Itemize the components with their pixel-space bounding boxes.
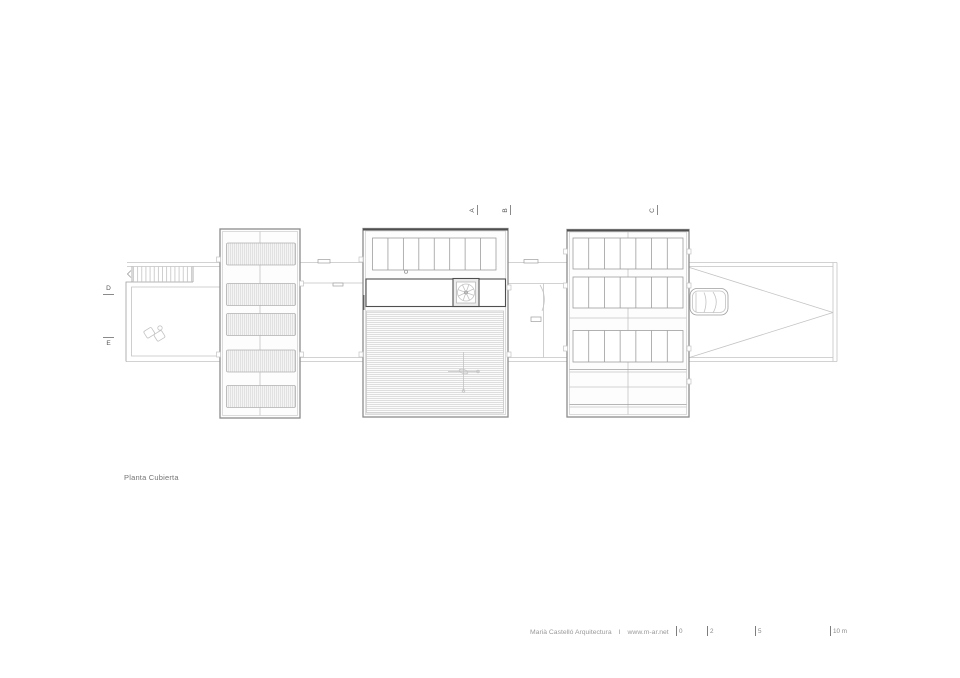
beam-stub <box>217 352 221 357</box>
solar-panel <box>227 386 296 408</box>
scale-tick-0: 0 <box>676 626 683 636</box>
section-marker-c: C <box>648 204 658 216</box>
scale-tick-5: 5 <box>755 626 762 636</box>
section-marker-e: E <box>102 337 115 347</box>
beam-stub <box>687 249 691 254</box>
beam-stub <box>359 352 363 357</box>
beam-stub <box>564 346 568 351</box>
credit-separator: I <box>619 629 621 636</box>
scale-tick-mark-icon <box>830 626 831 636</box>
roof-deck <box>367 311 504 413</box>
beam-stub <box>687 346 691 351</box>
beam-stub <box>359 257 363 262</box>
section-marker-d: D <box>102 285 115 295</box>
section-label-d: D <box>106 285 111 292</box>
drawing-title: Planta Cubierta <box>124 473 179 482</box>
section-marker-b: B <box>501 204 511 216</box>
website-url: www.m-ar.net <box>628 629 669 636</box>
stair-treads <box>134 267 192 283</box>
roof-panel-rows <box>573 238 683 362</box>
scale-tick-label: 0 <box>679 628 683 635</box>
scale-tick-mark-icon <box>676 626 677 636</box>
scale-tick-label: 10 m <box>833 628 847 635</box>
drawing-sheet: A B C D E Planta Cubierta Marià Castelló… <box>0 0 960 678</box>
scale-tick-10: 10 m <box>830 626 847 636</box>
scale-tick-2: 2 <box>707 626 714 636</box>
panel-row <box>573 277 683 308</box>
beam-stub <box>687 379 691 384</box>
section-tick-icon <box>103 337 114 338</box>
section-marker-a: A <box>468 204 478 216</box>
roof-block-right <box>567 230 689 418</box>
section-tick-icon <box>103 294 114 295</box>
scale-tick-label: 2 <box>710 628 714 635</box>
solar-panel <box>227 350 296 372</box>
car-icon <box>690 289 728 316</box>
roof-block-left <box>220 229 300 418</box>
scale-tick-label: 5 <box>758 628 762 635</box>
section-tick-icon <box>657 205 658 215</box>
roof-block-middle <box>363 229 508 418</box>
terrace-left <box>126 267 220 362</box>
beam-stub <box>507 352 511 357</box>
gravel-guide-line <box>690 268 834 313</box>
beam-stub <box>507 285 511 290</box>
gap-mid-right-details <box>508 260 567 358</box>
panel-row <box>573 331 683 363</box>
section-label-c: C <box>649 206 656 215</box>
gravel-guide-line <box>690 313 834 358</box>
section-label-e: E <box>106 340 110 347</box>
skylight-fan <box>453 279 479 307</box>
beam-stub <box>687 283 691 288</box>
beam-stub <box>300 352 304 357</box>
panel-row <box>573 238 683 269</box>
solar-panel <box>227 243 296 265</box>
solar-panel <box>227 284 296 306</box>
driveway <box>690 263 838 362</box>
beam-stub <box>217 257 221 262</box>
section-label-a: A <box>469 206 476 215</box>
footer-credit: Marià Castelló Arquitectura I www.m-ar.n… <box>530 629 669 636</box>
beam-stub <box>564 249 568 254</box>
gap-left-mid-details <box>300 260 363 287</box>
section-tick-icon <box>510 205 511 215</box>
terrace-furniture <box>143 323 165 345</box>
solar-panel <box>227 314 296 336</box>
section-label-b: B <box>502 206 509 215</box>
stair-direction-arrow <box>128 271 132 278</box>
beam-stub <box>300 281 304 286</box>
section-tick-icon <box>477 205 478 215</box>
roof-plan-drawing <box>0 0 960 678</box>
scale-tick-mark-icon <box>707 626 708 636</box>
architect-name: Marià Castelló Arquitectura <box>530 629 612 636</box>
beam-stub <box>564 283 568 288</box>
scale-tick-mark-icon <box>755 626 756 636</box>
